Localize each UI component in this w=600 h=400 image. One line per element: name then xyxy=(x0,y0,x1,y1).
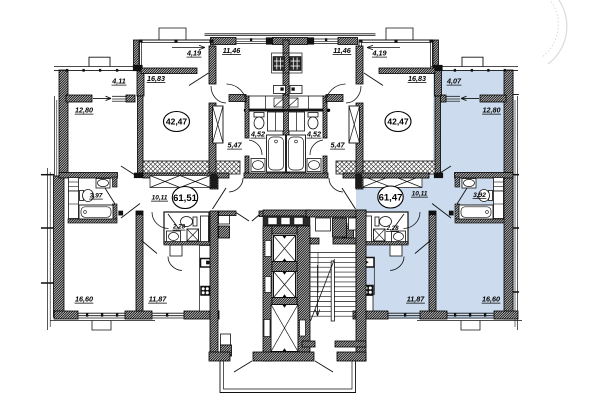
svg-text:10,11: 10,11 xyxy=(412,191,428,198)
svg-text:3,97: 3,97 xyxy=(90,193,103,200)
svg-text:11,87: 11,87 xyxy=(407,295,425,304)
svg-text:16,83: 16,83 xyxy=(408,74,426,83)
svg-text:12,80: 12,80 xyxy=(483,106,501,115)
svg-text:16,83: 16,83 xyxy=(147,74,165,83)
svg-text:4,19: 4,19 xyxy=(372,49,387,58)
svg-text:10,11: 10,11 xyxy=(152,195,168,202)
svg-text:4,52: 4,52 xyxy=(306,130,321,139)
svg-text:11,46: 11,46 xyxy=(333,46,351,55)
svg-text:61,51: 61,51 xyxy=(173,193,197,204)
svg-text:3,92: 3,92 xyxy=(473,192,486,199)
svg-text:4,11: 4,11 xyxy=(111,77,125,86)
svg-text:4,07: 4,07 xyxy=(446,77,462,86)
svg-text:2,28: 2,28 xyxy=(172,224,186,231)
svg-text:5,47: 5,47 xyxy=(228,141,243,150)
svg-text:4,52: 4,52 xyxy=(250,130,265,139)
svg-text:11,87: 11,87 xyxy=(149,295,167,304)
svg-text:11,46: 11,46 xyxy=(223,46,241,55)
svg-text:2,28: 2,28 xyxy=(385,225,399,232)
svg-text:4,19: 4,19 xyxy=(186,49,201,58)
svg-text:42,47: 42,47 xyxy=(387,117,409,127)
svg-text:61,47: 61,47 xyxy=(379,192,403,203)
svg-text:16,60: 16,60 xyxy=(482,295,500,304)
svg-text:12,80: 12,80 xyxy=(75,106,93,115)
svg-text:5,47: 5,47 xyxy=(331,141,346,150)
svg-text:16,60: 16,60 xyxy=(75,295,93,304)
svg-text:42,47: 42,47 xyxy=(166,117,188,127)
